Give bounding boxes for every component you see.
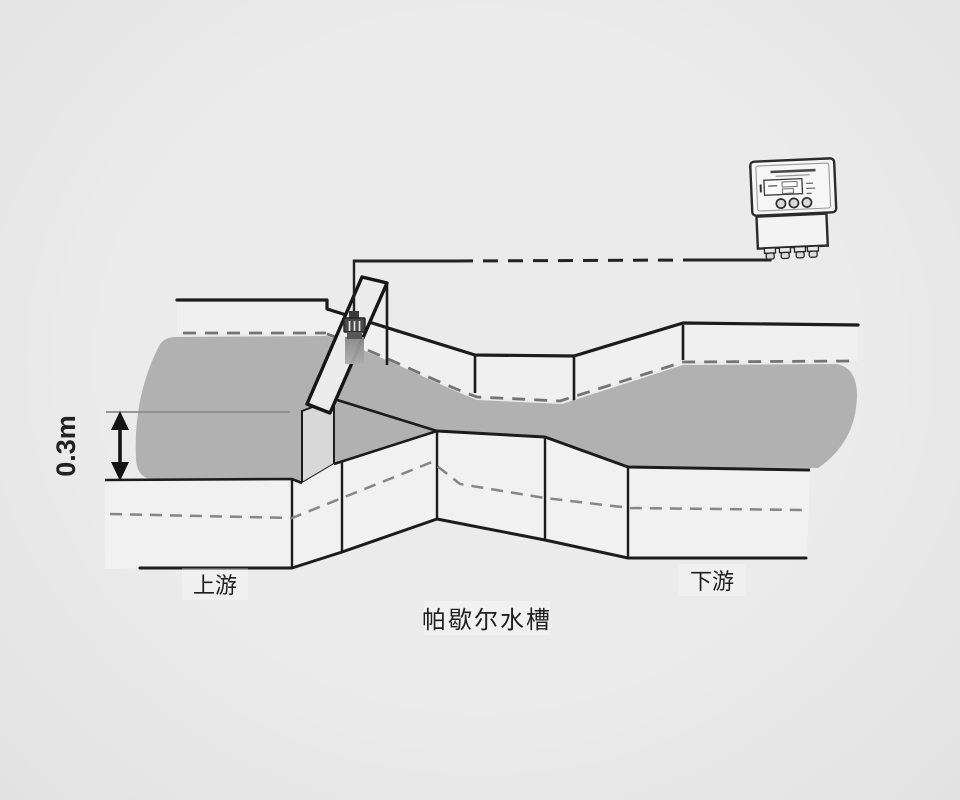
flume-title: 帕歇尔水槽	[422, 607, 552, 634]
transmitter-terminal-box	[756, 214, 827, 249]
transmitter-buttons	[776, 198, 812, 209]
dimension-arrowhead-down	[111, 462, 129, 481]
transmitter-unit	[750, 158, 838, 260]
cable-solid-right	[688, 252, 770, 260]
upstream-label: 上游	[193, 573, 237, 598]
diagram-stage: 0.3m	[0, 0, 960, 800]
diagram-labels: 上游 下游 帕歇尔水槽	[182, 564, 746, 635]
parshall-flume-diagram: 0.3m	[0, 0, 960, 800]
sensor-beam	[345, 337, 364, 364]
signal-cable	[353, 252, 770, 261]
depth-label: 0.3m	[51, 415, 81, 477]
downstream-label: 下游	[690, 569, 734, 594]
dimension-arrowhead-up	[111, 411, 129, 430]
cable-dashed-run	[458, 260, 688, 261]
